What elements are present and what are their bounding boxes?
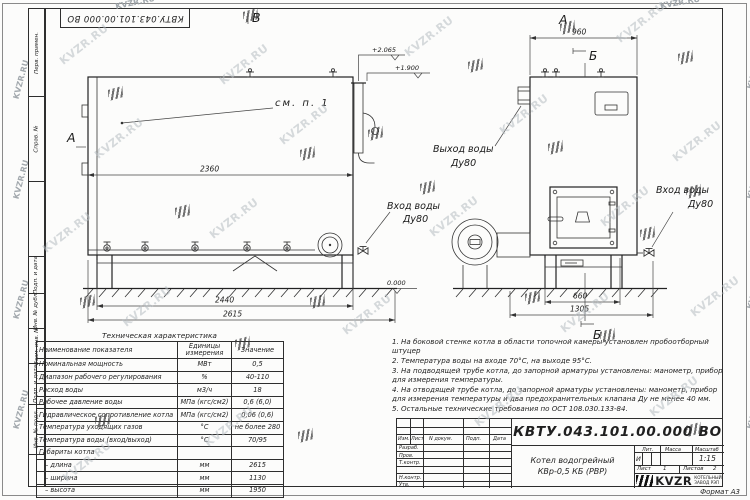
param-units: мм bbox=[178, 484, 232, 497]
nameplate bbox=[595, 92, 628, 115]
strip-cell: Перв. примен. bbox=[29, 9, 44, 97]
label-water-outlet: Выход воды bbox=[433, 144, 494, 155]
tb-header-podp: Подп. bbox=[466, 436, 481, 442]
table-row: – ширинамм1130 bbox=[37, 472, 284, 485]
outlet-flange-icon bbox=[518, 87, 530, 104]
param-name: Диапазон рабочего регулирования bbox=[37, 371, 178, 384]
label-water-outlet-dn: Ду80 bbox=[450, 158, 476, 169]
blower-fan bbox=[452, 219, 530, 288]
param-name: Гидравлическое сопротивление котла bbox=[37, 409, 178, 422]
table-row: – высотамм1950 bbox=[37, 484, 284, 497]
inlet-valve-icon bbox=[644, 249, 654, 257]
param-name: Габариты котла bbox=[37, 447, 178, 460]
tb-header-data: Дата bbox=[493, 436, 506, 442]
tb-row-tkontr: Т.контр. bbox=[399, 460, 421, 466]
tb-row-utv: Утв. bbox=[399, 482, 410, 488]
param-name: Рабочее давление воды bbox=[37, 396, 178, 409]
strip-cell: Подп. и дата bbox=[29, 256, 44, 294]
param-value: 0,5 bbox=[232, 359, 284, 372]
col-header-value: Значение bbox=[232, 342, 284, 359]
boiler-views-drawing: 2360 2440 2615 960 660 1305 +2.065 +1.90… bbox=[45, 5, 750, 343]
dimensions: 2360 2440 2615 960 660 1305 +2.065 +1.90… bbox=[88, 28, 653, 324]
tb-product-name: Котел водогрейный КВр-0,5 КБ (РВР) bbox=[511, 446, 634, 488]
section-marker-v: В bbox=[252, 10, 261, 25]
strip-cell bbox=[29, 181, 44, 257]
callout-see-note: см. п. 1 bbox=[275, 98, 330, 109]
peephole-icon bbox=[576, 212, 590, 222]
tb-sheet-value: 1 bbox=[663, 466, 667, 472]
inlet-valve-icon bbox=[358, 247, 368, 255]
table-row: – длинамм2615 bbox=[37, 459, 284, 472]
note-item: 3. На подводящей трубе котла, до запорно… bbox=[392, 366, 726, 384]
param-name: Температура уходящих газов bbox=[37, 421, 178, 434]
note-item: 4. На отводящей трубе котла, до запорной… bbox=[392, 385, 726, 403]
tb-sheet-label: Лист bbox=[637, 466, 651, 472]
tb-header-list: Лист bbox=[411, 436, 424, 442]
param-value: 40-110 bbox=[232, 371, 284, 384]
tb-sheets-label: Листов bbox=[683, 466, 704, 472]
dim-front-overall: 2615 bbox=[223, 310, 242, 319]
strip-label: Перв. примен. bbox=[34, 32, 40, 74]
safety-valve-icon bbox=[541, 69, 549, 77]
strip-cell: Инв. № дубл. bbox=[29, 293, 44, 329]
param-value: 1950 bbox=[232, 484, 284, 497]
dim-side-frame: 660 bbox=[573, 292, 588, 301]
dim-front-frame: 2440 bbox=[215, 296, 234, 305]
kvzr-logo-subtitle: КОТЕЛЬНЫЙ ЗАВОД РЭП bbox=[694, 476, 721, 486]
param-units: °С bbox=[178, 434, 232, 447]
param-units bbox=[178, 447, 232, 460]
strip-label: Инв. № дубл. bbox=[34, 291, 40, 329]
elevation-top: +2.065 bbox=[372, 46, 396, 54]
strip-cell: Справ. № bbox=[29, 96, 44, 182]
drawing-sheet: Перв. примен. Справ. № Подп. и дата Инв.… bbox=[0, 0, 750, 500]
safety-valve-icon bbox=[552, 69, 560, 77]
safety-valve-icon bbox=[246, 69, 254, 77]
param-units: °С bbox=[178, 421, 232, 434]
tb-mass-label: Масса bbox=[665, 447, 681, 453]
dim-side-overall: 1305 bbox=[570, 305, 589, 314]
tb-designation: КВТУ.043.101.00.000 ВО bbox=[511, 419, 724, 445]
tb-row-prov: Пров. bbox=[399, 453, 414, 459]
title-block: Изм. Лист N докум. Подп. Дата Разраб. Пр… bbox=[396, 418, 723, 487]
param-name: Температура воды (вход/выход) bbox=[37, 434, 178, 447]
param-units: мм bbox=[178, 472, 232, 485]
param-value: 70/95 bbox=[232, 434, 284, 447]
tb-sheets-value: 2 bbox=[713, 466, 717, 472]
kvzr-logo-icon bbox=[636, 475, 653, 487]
param-units: м3/ч bbox=[178, 384, 232, 397]
param-value: 2615 bbox=[232, 459, 284, 472]
tb-row-nkontr: Н.контр. bbox=[399, 475, 421, 481]
param-value bbox=[232, 447, 284, 460]
table-row: Расход водым3/ч18 bbox=[37, 384, 284, 397]
label-water-inlet-side: Вход воды bbox=[656, 185, 710, 196]
tech-characteristics: Техническая характеристика Наименование … bbox=[36, 331, 283, 498]
col-header-name: Наименование показателя bbox=[37, 342, 178, 359]
section-marker-b-bottom: Б bbox=[593, 328, 601, 342]
note-item: 5. Остальные технические требования по О… bbox=[392, 404, 726, 413]
dim-side-top: 960 bbox=[572, 28, 587, 37]
tb-row-razrab: Разраб. bbox=[399, 445, 419, 451]
strip-label: Справ. № bbox=[34, 125, 40, 152]
table-row: Температура уходящих газов°Сне более 280 bbox=[37, 421, 284, 434]
param-name: – высота bbox=[37, 484, 178, 497]
tb-header-dokum: N докум. bbox=[429, 436, 452, 442]
furnace-door bbox=[548, 187, 617, 248]
tb-lit-label: Лит. bbox=[642, 447, 654, 453]
param-name: – длина bbox=[37, 459, 178, 472]
pressure-gauge-icon bbox=[372, 128, 379, 135]
col-header-units: Единицы измерения bbox=[178, 342, 232, 359]
elevation-nozzle: +1.900 bbox=[395, 64, 419, 72]
note-item: 2. Температура воды на входе 70°С, на вы… bbox=[392, 356, 726, 365]
param-value: 1130 bbox=[232, 472, 284, 485]
param-value: 0,06 (0,6) bbox=[232, 409, 284, 422]
param-units: МПа (кгс/см2) bbox=[178, 409, 232, 422]
technical-notes: 1. На боковой стенке котла в области топ… bbox=[392, 337, 726, 413]
table-row: Гидравлическое сопротивление котлаМПа (к… bbox=[37, 409, 284, 422]
safety-valve-icon bbox=[329, 69, 337, 77]
tb-product-name-line1: Котел водогрейный bbox=[531, 456, 615, 467]
safety-valve-icon bbox=[597, 69, 605, 77]
ground-hatch-right bbox=[456, 289, 658, 297]
table-row: Габариты котла bbox=[37, 447, 284, 460]
front-view bbox=[82, 69, 397, 297]
param-units: МВт bbox=[178, 359, 232, 372]
label-water-inlet-front: Вход воды bbox=[387, 201, 441, 212]
tech-table-header: Наименование показателя Единицы измерени… bbox=[37, 342, 284, 359]
section-marker-a-side: А bbox=[558, 12, 568, 27]
param-units: % bbox=[178, 371, 232, 384]
param-units: МПа (кгс/см2) bbox=[178, 396, 232, 409]
tb-lit-value: И bbox=[636, 455, 641, 463]
tb-header-izm: Изм. bbox=[398, 436, 410, 442]
strip-label: Подп. и дата bbox=[34, 255, 40, 293]
table-row: Диапазон рабочего регулирования%40-110 bbox=[37, 371, 284, 384]
param-value: не более 280 bbox=[232, 421, 284, 434]
section-marker-a-front: А bbox=[66, 130, 76, 145]
side-view bbox=[452, 69, 667, 297]
kvzr-logo-text: KVZR bbox=[655, 474, 692, 488]
ground-hatch-left bbox=[86, 289, 392, 297]
tb-product-name-line2: КВр-0,5 КБ (РВР) bbox=[538, 467, 608, 478]
format-label: Формат А3 bbox=[655, 488, 740, 496]
logo-sub-line2: ЗАВОД РЭП bbox=[694, 480, 719, 485]
dim-front-inner: 2360 bbox=[200, 165, 219, 174]
table-row: Температура воды (вход/выход)°С70/95 bbox=[37, 434, 284, 447]
param-name: Номинальная мощность bbox=[37, 359, 178, 372]
table-row: Рабочее давление водыМПа (кгс/см2)0,6 (6… bbox=[37, 396, 284, 409]
label-water-inlet-side-dn: Ду80 bbox=[687, 199, 713, 210]
tech-table: Наименование показателя Единицы измерени… bbox=[36, 341, 284, 498]
label-water-inlet-front-dn: Ду80 bbox=[402, 214, 428, 225]
table-row: Номинальная мощностьМВт0,5 bbox=[37, 359, 284, 372]
tb-scale-value: 1:15 bbox=[699, 454, 716, 463]
section-marker-b-top: Б bbox=[589, 49, 597, 63]
elevation-ground: 0.000 bbox=[387, 279, 406, 287]
param-name: – ширина bbox=[37, 472, 178, 485]
tb-scale-label: Масштаб bbox=[695, 447, 719, 453]
param-name: Расход воды bbox=[37, 384, 178, 397]
param-units: мм bbox=[178, 459, 232, 472]
param-value: 0,6 (6,0) bbox=[232, 396, 284, 409]
param-value: 18 bbox=[232, 384, 284, 397]
company-logo: KVZR КОТЕЛЬНЫЙ ЗАВОД РЭП bbox=[634, 473, 724, 488]
